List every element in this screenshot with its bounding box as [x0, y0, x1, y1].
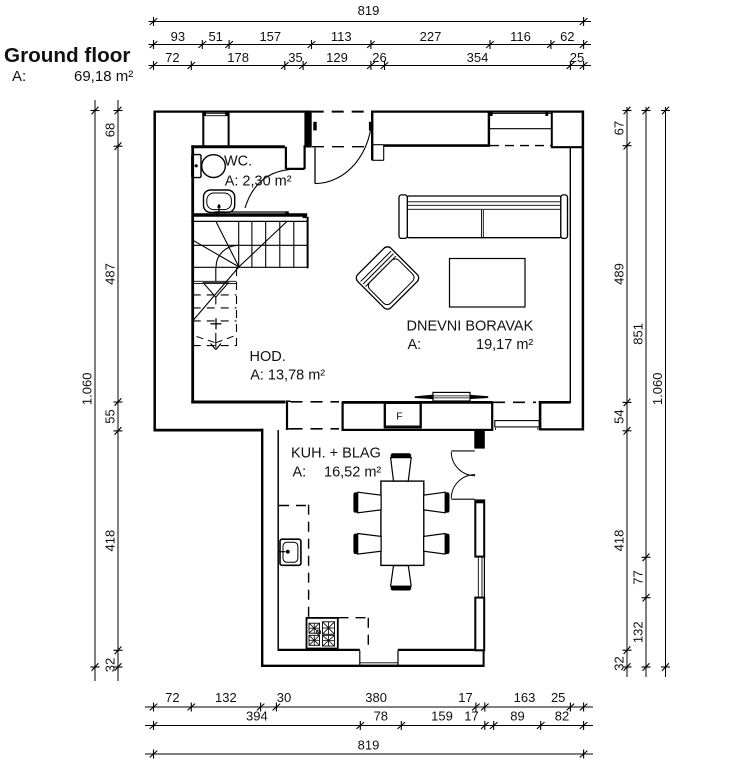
- svg-text:30: 30: [277, 690, 291, 705]
- svg-text:17: 17: [458, 690, 472, 705]
- svg-text:489: 489: [612, 263, 627, 285]
- svg-text:HOD.: HOD.: [250, 349, 286, 365]
- svg-text:Ground floor: Ground floor: [4, 44, 130, 67]
- svg-text:851: 851: [631, 323, 646, 345]
- svg-text:A:: A:: [293, 465, 307, 481]
- svg-text:62: 62: [560, 29, 574, 44]
- svg-text:380: 380: [365, 690, 387, 705]
- svg-text:35: 35: [288, 50, 302, 65]
- svg-text:69,18 m²: 69,18 m²: [74, 68, 133, 85]
- svg-text:116: 116: [510, 29, 531, 44]
- svg-text:163: 163: [514, 690, 536, 705]
- svg-text:159: 159: [431, 709, 453, 724]
- svg-text:A:: A:: [12, 68, 26, 85]
- svg-text:819: 819: [358, 738, 380, 753]
- svg-text:67: 67: [612, 121, 627, 135]
- svg-text:132: 132: [631, 621, 646, 643]
- svg-text:129: 129: [326, 50, 348, 65]
- svg-text:78: 78: [374, 709, 388, 724]
- svg-text:77: 77: [631, 570, 646, 584]
- svg-text:WC.: WC.: [224, 154, 252, 170]
- svg-text:F: F: [396, 411, 402, 423]
- svg-text:72: 72: [165, 690, 179, 705]
- svg-text:819: 819: [358, 3, 380, 18]
- svg-text:A:: A:: [408, 337, 422, 353]
- svg-text:25: 25: [570, 50, 584, 65]
- svg-text:68: 68: [103, 123, 118, 137]
- svg-text:227: 227: [420, 29, 442, 44]
- svg-text:KUH. + BLAG: KUH. + BLAG: [291, 445, 381, 461]
- svg-text:1.060: 1.060: [80, 373, 95, 406]
- svg-text:418: 418: [103, 530, 118, 552]
- svg-text:17: 17: [464, 709, 478, 724]
- svg-text:16,52 m²: 16,52 m²: [324, 465, 381, 481]
- svg-text:394: 394: [246, 709, 268, 724]
- svg-text:82: 82: [555, 709, 569, 724]
- svg-text:178: 178: [227, 50, 249, 65]
- svg-text:354: 354: [467, 50, 489, 65]
- svg-text:54: 54: [612, 409, 627, 423]
- svg-text:32: 32: [103, 658, 118, 672]
- svg-text:72: 72: [165, 50, 179, 65]
- svg-text:51: 51: [208, 29, 222, 44]
- svg-text:93: 93: [171, 29, 185, 44]
- svg-text:25: 25: [551, 690, 565, 705]
- svg-text:1.060: 1.060: [650, 373, 665, 406]
- svg-text:A: 13,78 m²: A: 13,78 m²: [250, 368, 325, 384]
- svg-text:A: 2,30 m²: A: 2,30 m²: [225, 174, 292, 190]
- svg-text:487: 487: [103, 263, 118, 285]
- svg-text:55: 55: [103, 409, 118, 423]
- svg-text:157: 157: [259, 29, 281, 44]
- svg-text:418: 418: [612, 530, 627, 552]
- svg-text:132: 132: [215, 690, 237, 705]
- svg-text:113: 113: [331, 29, 352, 44]
- svg-text:89: 89: [510, 709, 524, 724]
- svg-text:19,17 m²: 19,17 m²: [476, 337, 533, 353]
- svg-text:DNEVNI BORAVAK: DNEVNI BORAVAK: [407, 318, 534, 334]
- svg-text:26: 26: [372, 50, 386, 65]
- svg-text:32: 32: [612, 656, 627, 670]
